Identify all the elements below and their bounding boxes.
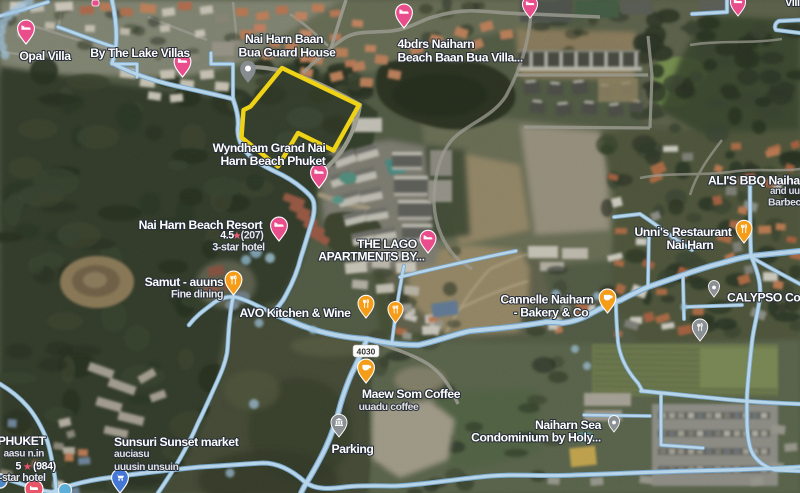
svg-text:CALYPSO Co: CALYPSO Co bbox=[727, 291, 800, 305]
svg-text:Sunsuri Sunset market: Sunsuri Sunset market bbox=[114, 435, 239, 449]
svg-text:3-star hotel: 3-star hotel bbox=[212, 242, 265, 254]
svg-text:uuadu coffee: uuadu coffee bbox=[359, 402, 419, 413]
svg-text:(984): (984) bbox=[33, 461, 56, 473]
svg-text:Nai Harn: Nai Harn bbox=[667, 238, 714, 252]
svg-text:Opal Villa: Opal Villa bbox=[19, 49, 71, 63]
svg-text:uuusin unsuin: uuusin unsuin bbox=[114, 462, 179, 473]
svg-text:Beach Baan Bua Villa...: Beach Baan Bua Villa... bbox=[398, 51, 523, 65]
svg-text:AVO Kitchen & Wine: AVO Kitchen & Wine bbox=[240, 306, 352, 320]
svg-text:PHUKET: PHUKET bbox=[0, 434, 46, 448]
svg-text:Harn Beach Phuket: Harn Beach Phuket bbox=[221, 154, 326, 168]
svg-text:4030: 4030 bbox=[357, 347, 376, 357]
svg-text:Barbec: Barbec bbox=[768, 198, 800, 209]
svg-text:Samut - auuns: Samut - auuns bbox=[145, 275, 224, 289]
svg-text:Wyndham Grand Nai: Wyndham Grand Nai bbox=[213, 141, 326, 155]
svg-text:and uuu: and uuu bbox=[770, 186, 800, 197]
svg-text:Condominium by Holy...: Condominium by Holy... bbox=[471, 431, 601, 445]
svg-text:5: 5 bbox=[16, 461, 22, 473]
svg-text:auciasu: auciasu bbox=[114, 449, 149, 460]
svg-text:APARTMENTS BY...: APARTMENTS BY... bbox=[318, 250, 424, 264]
svg-text:(207): (207) bbox=[241, 230, 264, 242]
svg-text:-star hotel: -star hotel bbox=[0, 472, 46, 484]
svg-text:Nai Harn Baan: Nai Harn Baan bbox=[245, 32, 323, 46]
svg-text:Unni's Restaurant: Unni's Restaurant bbox=[634, 225, 731, 239]
svg-text:Maew Som Coffee: Maew Som Coffee bbox=[362, 387, 461, 401]
svg-text:Villa: Villa bbox=[785, 0, 800, 9]
svg-text:Bua Guard House: Bua Guard House bbox=[239, 46, 337, 60]
svg-text:By The Lake Villas: By The Lake Villas bbox=[90, 46, 190, 60]
svg-text:4bdrs Naiharn: 4bdrs Naiharn bbox=[398, 37, 475, 51]
svg-text:Cannelle Naiharn: Cannelle Naiharn bbox=[500, 293, 593, 307]
svg-text:Fine dining: Fine dining bbox=[171, 289, 223, 301]
svg-text:- Bakery & Co: - Bakery & Co bbox=[514, 306, 589, 320]
svg-text:aasu n.in: aasu n.in bbox=[3, 449, 44, 460]
svg-text:Parking: Parking bbox=[332, 442, 374, 456]
